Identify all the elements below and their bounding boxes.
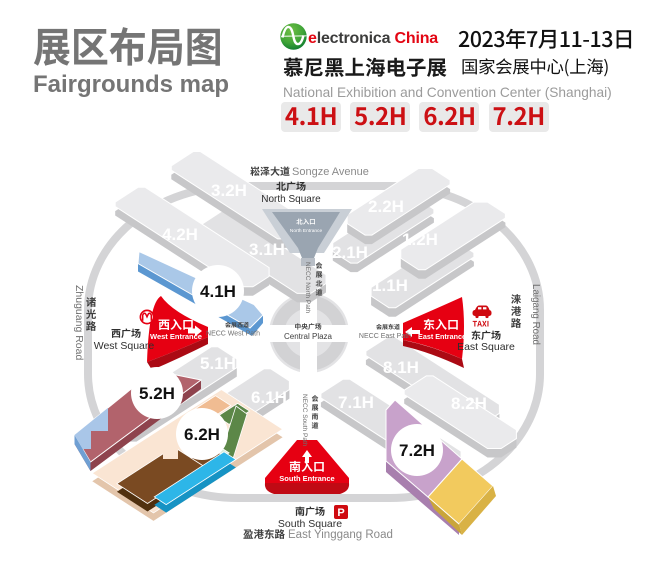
svg-text:3.2H: 3.2H	[211, 181, 247, 200]
svg-text:6.1H: 6.1H	[251, 388, 287, 407]
svg-text:Songze Avenue: Songze Avenue	[292, 166, 369, 178]
svg-text:2.1H: 2.1H	[332, 243, 368, 262]
svg-text:West Square: West Square	[94, 340, 155, 352]
svg-text:7.1H: 7.1H	[338, 393, 374, 412]
svg-text:5.1H: 5.1H	[200, 354, 236, 373]
svg-text:North Entrance: North Entrance	[290, 228, 323, 234]
svg-text:East Square: East Square	[457, 341, 515, 353]
svg-text:NECC West Path: NECC West Path	[206, 331, 260, 338]
svg-text:South Entrance: South Entrance	[279, 474, 334, 483]
svg-text:2.2H: 2.2H	[368, 197, 404, 216]
svg-text:3.1H: 3.1H	[249, 240, 285, 259]
svg-text:7.2H: 7.2H	[399, 441, 435, 460]
svg-text:Zhuguang Road: Zhuguang Road	[73, 285, 85, 360]
svg-text:East Yinggang Road: East Yinggang Road	[288, 529, 393, 541]
svg-text:8.1H: 8.1H	[383, 358, 419, 377]
svg-text:5.2H: 5.2H	[139, 384, 175, 403]
svg-text:NECC East Path: NECC East Path	[359, 333, 411, 340]
svg-text:NECC North Path: NECC North Path	[304, 262, 311, 314]
svg-text:1.2H: 1.2H	[402, 230, 438, 249]
svg-text:4.1H: 4.1H	[200, 282, 236, 301]
svg-text:Central Plaza: Central Plaza	[284, 332, 333, 341]
svg-text:4.2H: 4.2H	[162, 225, 198, 244]
svg-text:North Square: North Square	[261, 194, 321, 205]
svg-text:8.2H: 8.2H	[451, 394, 487, 413]
svg-text:6.2H: 6.2H	[184, 425, 220, 444]
svg-text:East Entrance: East Entrance	[418, 332, 466, 341]
svg-text:NECC South Path: NECC South Path	[301, 394, 308, 447]
svg-text:P: P	[337, 507, 344, 519]
svg-text:1.1H: 1.1H	[372, 276, 408, 295]
svg-text:Laigang Road: Laigang Road	[530, 284, 541, 345]
